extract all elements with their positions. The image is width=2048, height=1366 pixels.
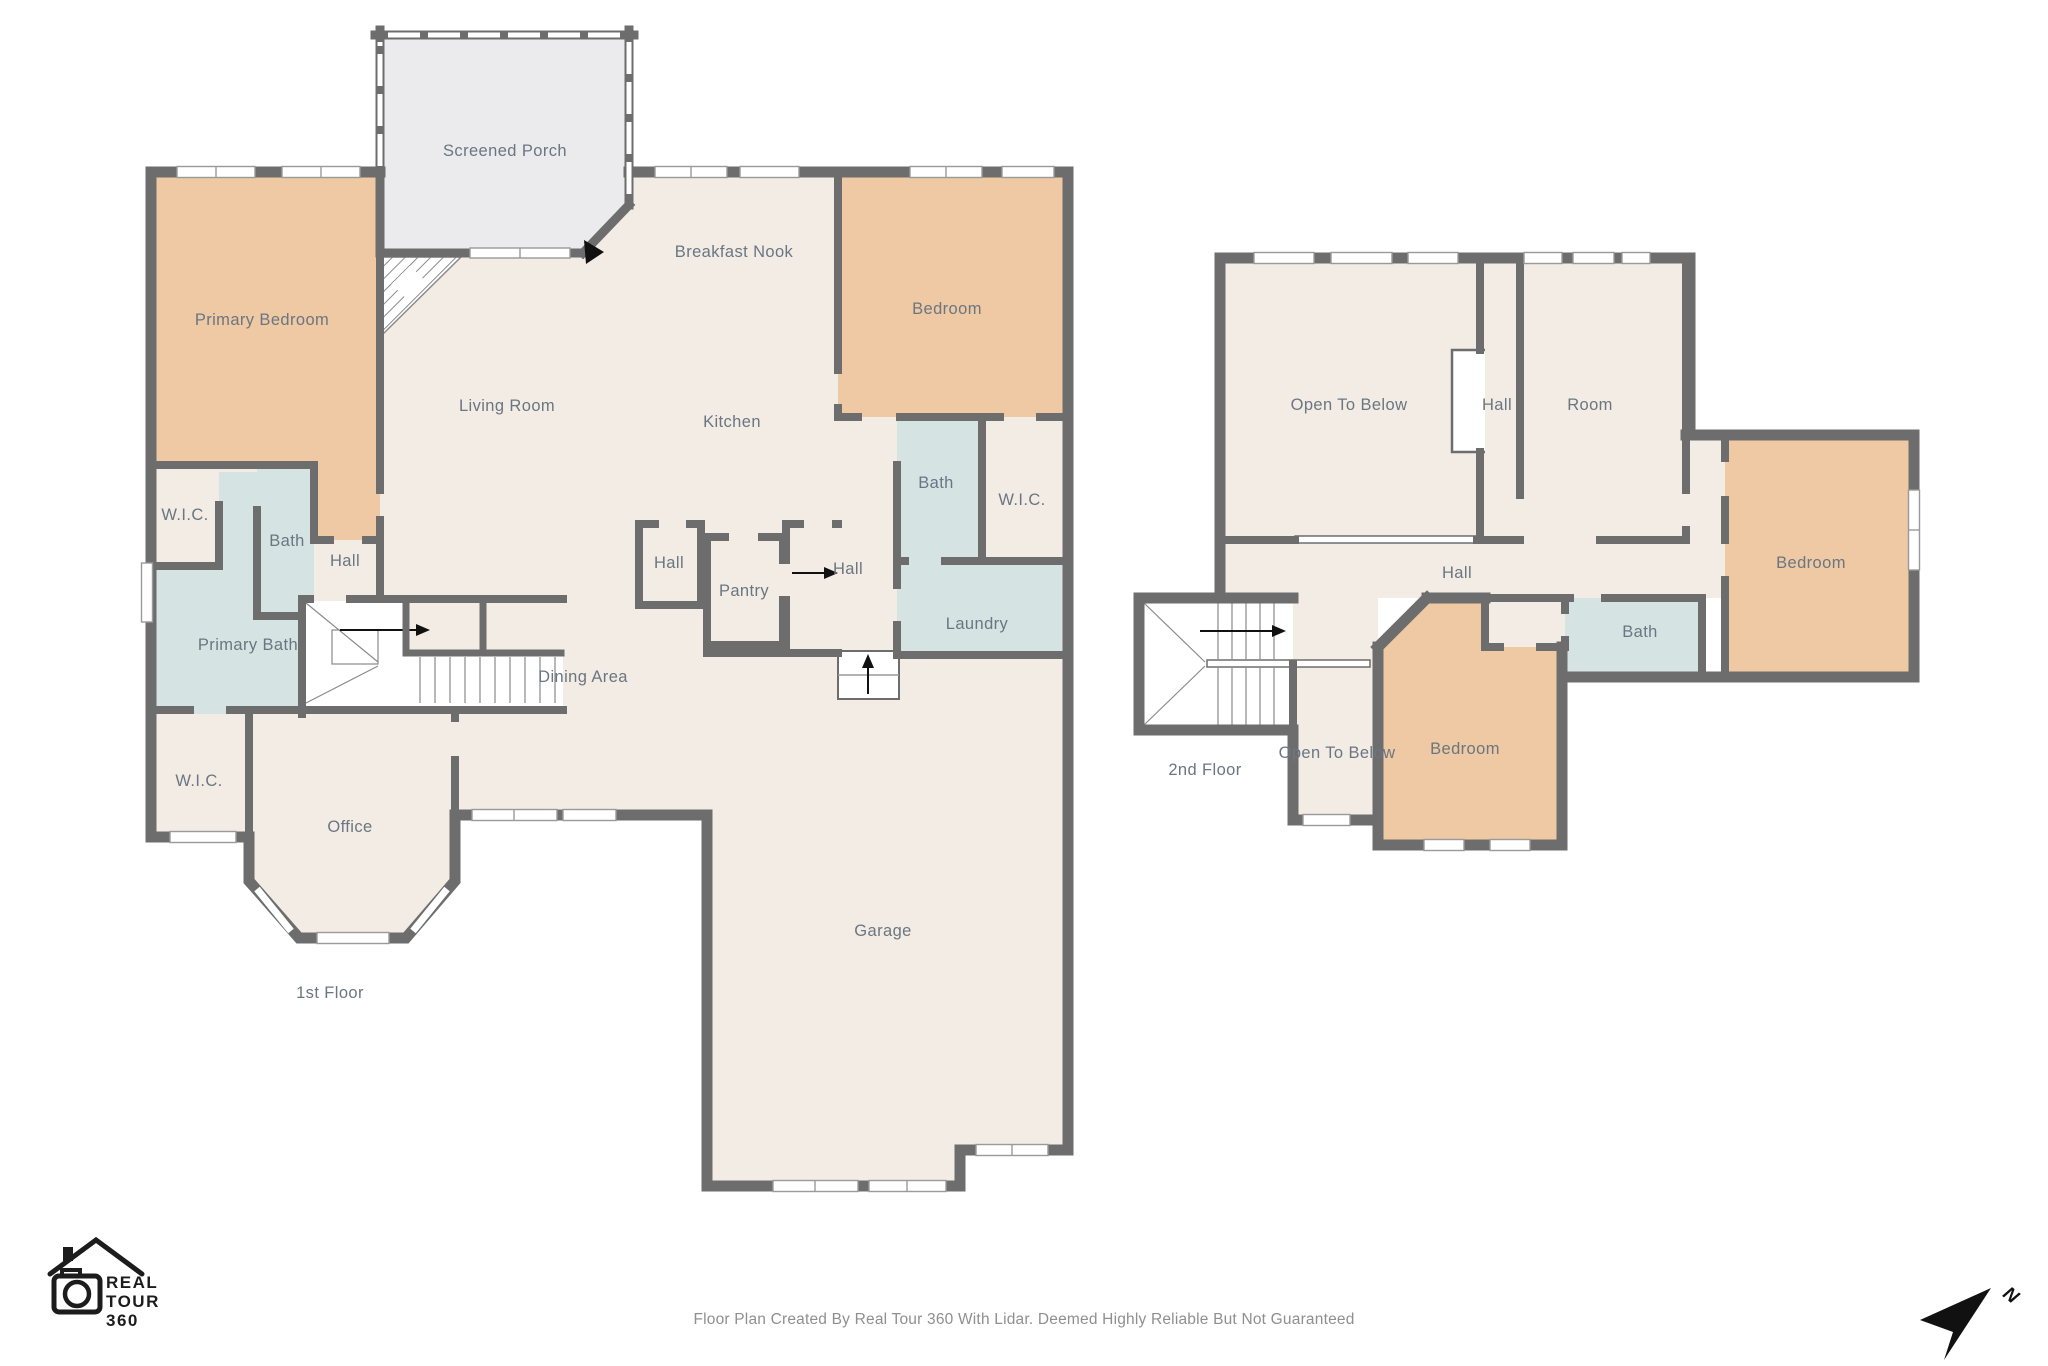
hall-niche (1452, 350, 1485, 452)
room-label-office: Office (327, 818, 372, 836)
room-label-screened-porch: Screened Porch (443, 142, 567, 160)
floor-plan-drawing: Screened Porch Primary Bedroom Breakfast… (0, 0, 2048, 1366)
room-label-pantry: Pantry (719, 582, 769, 600)
room-label-bedroom-right: Bedroom (1776, 554, 1846, 572)
room-label-wic-left: W.I.C. (175, 772, 222, 790)
compass: N (1920, 1283, 2023, 1360)
room-label-hall1: Hall (330, 552, 360, 570)
open-below-small-area (1293, 598, 1378, 820)
room-label-room: Room (1567, 396, 1613, 414)
vestibule-area (1686, 435, 1725, 540)
room-label-kitchen: Kitchen (703, 413, 761, 431)
logo-line2: TOUR (106, 1292, 160, 1311)
logo-chimney-icon (63, 1247, 73, 1261)
bedroom-area (838, 172, 1068, 417)
hall-band-area (1220, 540, 1725, 598)
logo-line1: REAL (106, 1273, 158, 1292)
room-label-breakfast-nook: Breakfast Nook (675, 243, 794, 261)
room-label-primary-bedroom: Primary Bedroom (195, 311, 329, 329)
room-label-bath-center: Bath (918, 474, 954, 492)
compass-north-label: N (1999, 1283, 2024, 1309)
laundry-area (897, 561, 1068, 655)
floor-plan-page: Screened Porch Primary Bedroom Breakfast… (0, 0, 2048, 1366)
stair2-rail (1207, 660, 1370, 667)
floor2-plan: Open To Below Hall Room Bedroom Hall Bat… (1139, 253, 1920, 851)
footer-disclaimer: Floor Plan Created By Real Tour 360 With… (693, 1311, 1354, 1328)
room-label-open-to-below-small: Open To Below (1279, 744, 1396, 762)
floor1-plan: Screened Porch Primary Bedroom Breakfast… (142, 30, 1069, 1192)
room-label-wic-right: W.I.C. (998, 491, 1045, 509)
room-label-hall2: Hall (654, 554, 684, 572)
room-label-bedroom-bottom: Bedroom (1430, 740, 1500, 758)
room-label-primary-bath: Primary Bath (198, 636, 298, 654)
floor2-name: 2nd Floor (1168, 761, 1241, 779)
real-tour-360-logo: REAL TOUR 360 (50, 1240, 160, 1330)
logo-line3: 360 (106, 1311, 139, 1330)
open-below-railing (1295, 536, 1477, 543)
room-label-hall3: Hall (833, 560, 863, 578)
north-arrow-icon (1920, 1288, 1991, 1360)
floor1-name: 1st Floor (296, 984, 364, 1002)
room-label-garage: Garage (854, 922, 911, 940)
room-label-bath2: Bath (1622, 623, 1658, 641)
room-label-bath-f1: Bath (269, 532, 305, 550)
room-label-laundry: Laundry (946, 615, 1009, 633)
logo-camera-lens-icon (65, 1282, 89, 1306)
room-label-wic-top: W.I.C. (161, 506, 208, 524)
room-label-hall-upper: Hall (1482, 396, 1512, 414)
room-label-dining-area: Dining Area (538, 668, 628, 686)
room-label-hall-mid: Hall (1442, 564, 1472, 582)
vestibule2-area (1485, 598, 1565, 647)
room-label-living-room: Living Room (459, 397, 555, 415)
room-label-bedroom-f1: Bedroom (912, 300, 982, 318)
room-label-open-to-below: Open To Below (1291, 396, 1408, 414)
